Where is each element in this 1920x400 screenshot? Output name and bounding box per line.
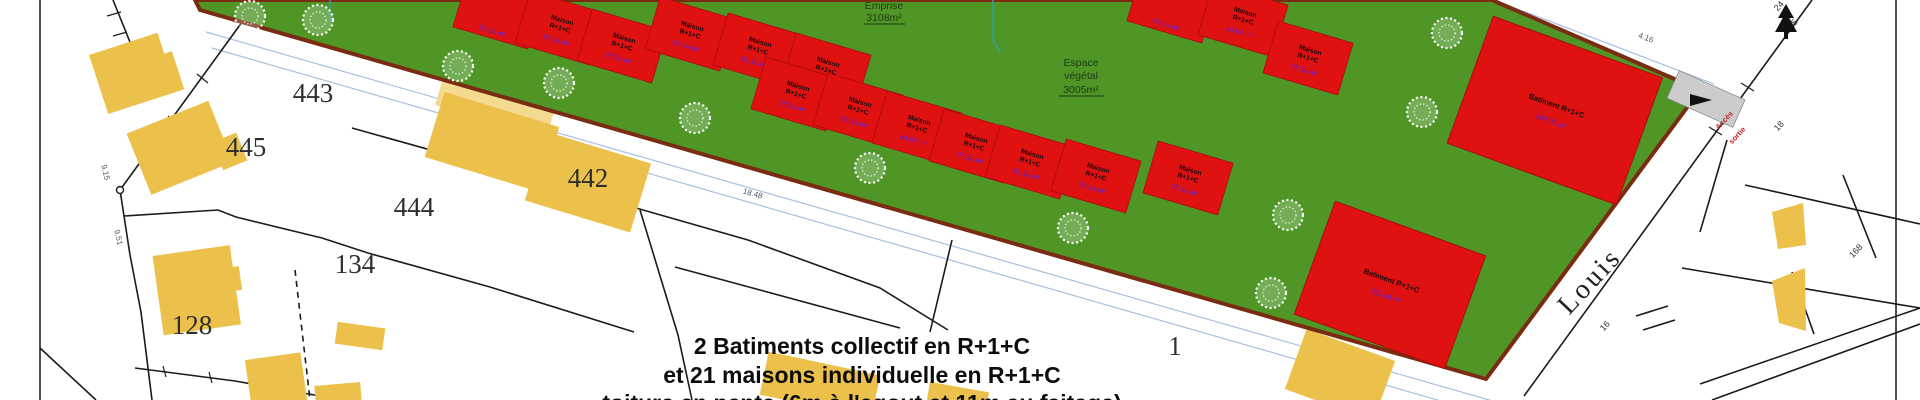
parcel-445: 445 bbox=[226, 132, 267, 162]
tree-symbol bbox=[1407, 97, 1437, 127]
tree-symbol bbox=[1058, 213, 1088, 243]
existing-building bbox=[245, 352, 307, 400]
site-plan-drawing: 81.26 m²MaisonR+1+C84.64 m²MaisonR+1+C78… bbox=[0, 0, 1920, 400]
parcel-128: 128 bbox=[172, 310, 213, 340]
parcel-442: 442 bbox=[568, 163, 609, 193]
tree-symbol bbox=[443, 51, 473, 81]
espace-line2: végétal bbox=[1064, 70, 1098, 82]
tree-symbol bbox=[1432, 18, 1462, 48]
note-line3: toiture en pente (6m à l'egout et 11m au… bbox=[602, 390, 1121, 400]
tree-symbol bbox=[855, 153, 885, 183]
tree-symbol bbox=[235, 1, 265, 31]
emprise-area: 3108m² bbox=[866, 12, 902, 24]
tree-symbol bbox=[544, 68, 574, 98]
parcel-134: 134 bbox=[335, 249, 376, 279]
espace-line1: Espace bbox=[1063, 57, 1098, 69]
parcel-1: 1 bbox=[1168, 331, 1182, 361]
note-line2: et 21 maisons individuelle en R+1+C bbox=[663, 362, 1061, 388]
parcel-443: 443 bbox=[293, 78, 334, 108]
parcel-444: 444 bbox=[394, 192, 435, 222]
espace-area: 3005m² bbox=[1063, 84, 1099, 96]
tree-symbol bbox=[1273, 200, 1303, 230]
tree-symbol bbox=[680, 103, 710, 133]
tree-symbol bbox=[303, 5, 333, 35]
tree-symbol bbox=[1256, 278, 1286, 308]
emprise-title: Emprise bbox=[865, 0, 904, 12]
survey-node bbox=[117, 187, 124, 194]
note-line1: 2 Batiments collectif en R+1+C bbox=[694, 333, 1030, 359]
